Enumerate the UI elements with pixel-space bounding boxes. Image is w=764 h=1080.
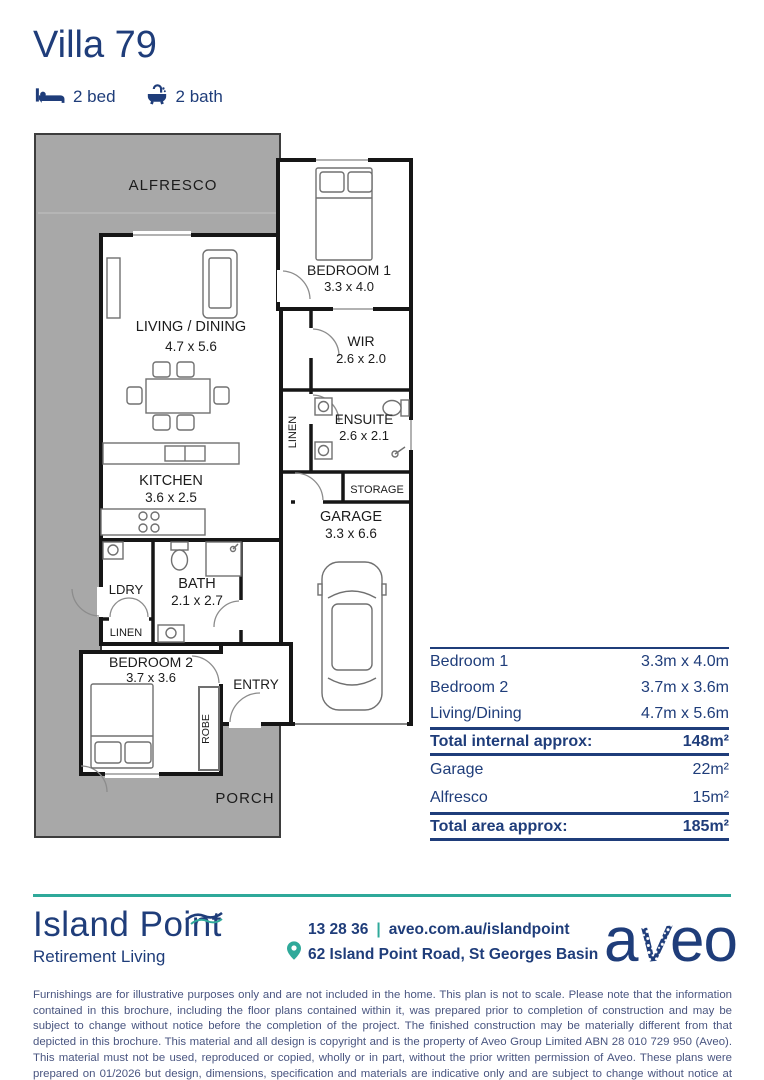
row-value: 3.3m x 4.0m: [641, 653, 729, 671]
bath-vanity-icon: [158, 625, 184, 642]
row-label: Alfresco: [430, 789, 488, 807]
contact-line-2: 62 Island Point Road, St Georges Basin: [287, 941, 598, 967]
table-row: Bedroom 1 3.3m x 4.0m: [430, 649, 729, 675]
contact-line-1: 13 28 36 | aveo.com.au/islandpoint: [287, 918, 598, 941]
sofa-icon: [203, 250, 237, 318]
wave-icon: [182, 894, 226, 934]
row-value: 4.7m x 5.6m: [641, 705, 729, 723]
kitchen-island-icon: [103, 443, 239, 464]
row-value: 15m²: [693, 789, 729, 807]
bed-icon: [35, 85, 65, 109]
aveo-logo: a v eo: [604, 901, 744, 984]
area-table: Bedroom 1 3.3m x 4.0m Bedroom 2 3.7m x 3…: [430, 647, 729, 841]
row-value: 22m²: [693, 761, 729, 779]
map-pin-icon: [287, 941, 301, 967]
disclaimer-text: Furnishings are for illustrative purpose…: [33, 988, 732, 1080]
row-label: Living/Dining: [430, 705, 522, 723]
row-value: 148m²: [683, 733, 729, 751]
kitchen-label: KITCHEN: [139, 473, 203, 489]
row-label: Bedroom 1: [430, 653, 508, 671]
row-label: Bedroom 2: [430, 679, 508, 697]
laundry-tub-icon: [103, 542, 123, 559]
aveo-letter-a: a: [604, 906, 639, 975]
tv-unit-icon: [107, 258, 120, 318]
bath-label: 2 bath: [176, 87, 223, 107]
kitchen-dims: 3.6 x 2.5: [145, 490, 197, 505]
alfresco-label: ALFRESCO: [129, 177, 218, 194]
bed1-icon: [316, 168, 372, 260]
table-row: Living/Dining 4.7m x 5.6m: [430, 701, 729, 727]
row-value: 185m²: [683, 818, 729, 836]
total-internal-row: Total internal approx: 148m²: [430, 727, 729, 756]
website-link[interactable]: aveo.com.au/islandpoint: [389, 918, 570, 941]
garage-label: GARAGE: [320, 509, 382, 525]
bath-label: BATH: [178, 576, 216, 592]
page-title: Villa 79: [33, 24, 157, 67]
teal-divider: [33, 894, 731, 897]
row-label: Total area approx:: [430, 818, 568, 836]
wir-label: WIR: [347, 333, 374, 349]
table-row: Garage 22m²: [430, 756, 729, 784]
entry-label: ENTRY: [233, 677, 279, 692]
garage-dims: 3.3 x 6.6: [325, 526, 377, 541]
storage-label: STORAGE: [350, 484, 404, 496]
brand-name: Island Point: [33, 905, 222, 945]
bed-label: 2 bed: [73, 87, 116, 107]
row-label: Total internal approx:: [430, 733, 592, 751]
living-dims: 4.7 x 5.6: [165, 339, 217, 354]
shower-icon: [206, 542, 241, 576]
row-label: Garage: [430, 761, 483, 779]
car-icon: [318, 562, 386, 710]
total-area-row: Total area approx: 185m²: [430, 812, 729, 841]
bedroom2-label: BEDROOM 2: [109, 654, 193, 670]
contact-block: 13 28 36 | aveo.com.au/islandpoint 62 Is…: [287, 918, 598, 968]
brochure-page: Villa 79 2 bed: [0, 0, 764, 1080]
bath-toilet-icon: [171, 542, 188, 570]
island-point-logo: Island Point Retirement Living: [33, 905, 222, 967]
linen-hall-label: LINEN: [287, 416, 299, 448]
address-text: 62 Island Point Road, St Georges Basin: [308, 943, 598, 966]
bedroom1-dims: 3.3 x 4.0: [324, 279, 374, 294]
laundry-label: LDRY: [109, 582, 144, 597]
bath-feature: 2 bath: [146, 83, 223, 110]
bedroom2-dims: 3.7 x 3.6: [126, 670, 176, 685]
ensuite-dims: 2.6 x 2.1: [339, 428, 389, 443]
bedroom1-label: BEDROOM 1: [307, 262, 391, 278]
cooktop-bench-icon: [101, 509, 205, 535]
ensuite-label: ENSUITE: [335, 412, 394, 427]
porch-label: PORCH: [215, 790, 274, 807]
table-row: Bedroom 2 3.7m x 3.6m: [430, 675, 729, 701]
table-row: Alfresco 15m²: [430, 784, 729, 812]
living-label: LIVING / DINING: [136, 319, 246, 335]
robe-label: ROBE: [200, 714, 212, 744]
row-value: 3.7m x 3.6m: [641, 679, 729, 697]
bath-icon: [146, 83, 168, 110]
phone-number: 13 28 36: [308, 918, 368, 941]
linen2-label: LINEN: [110, 627, 142, 639]
wir-dims: 2.6 x 2.0: [336, 351, 386, 366]
brand-tagline: Retirement Living: [33, 947, 222, 967]
bath-dims: 2.1 x 2.7: [171, 593, 223, 608]
feature-row: 2 bed 2 bath: [35, 83, 223, 110]
bed-feature: 2 bed: [35, 85, 116, 109]
separator: |: [376, 918, 380, 941]
bed2-icon: [91, 684, 153, 768]
floorplan: ALFRESCO BEDROOM 1 3.3 x 4.0 LIVING / DI…: [33, 132, 418, 852]
aveo-letters-eo: eo: [670, 906, 737, 975]
